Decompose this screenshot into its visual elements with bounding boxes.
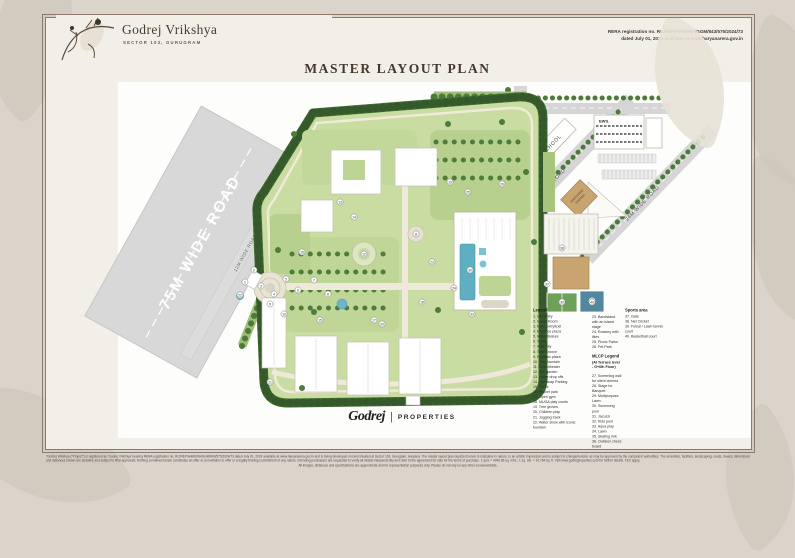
sports-heading: Sports area — [625, 308, 665, 313]
properties-wordmark: PROPERTIES — [398, 414, 456, 421]
map-marker-number: 18 — [420, 300, 424, 304]
legend-item: 24. Rockery with lilies — [592, 330, 622, 340]
ews-label: EWS. — [599, 119, 609, 124]
mlcp-heading: MLCP Legend — [592, 354, 622, 359]
mlcp-building — [454, 212, 516, 310]
map-marker-number: 15 — [318, 318, 322, 322]
map-marker-number: 30 — [468, 268, 472, 272]
legend-column-1: Legend 1. Site Entry2. Guard Room3. Main… — [533, 308, 589, 430]
rooftop-lawn — [479, 276, 511, 296]
kids-pool — [480, 261, 487, 268]
legend-item: 27. Screening wall for silent cinema — [592, 373, 622, 383]
logo-divider: | — [390, 411, 393, 423]
map-marker-number: 16 — [300, 250, 304, 254]
legend-item: 23. Bandstand with an island stage — [592, 315, 622, 330]
legend-item: 28. Stage for Banquet — [592, 384, 622, 394]
map-marker-number: 7 — [313, 278, 315, 282]
banquet-block — [553, 257, 589, 289]
map-marker-number: 1 — [244, 280, 246, 284]
map-marker-number: 40 — [590, 300, 594, 304]
map-marker-number: 11 — [414, 232, 418, 236]
map-marker-number: 13 — [338, 200, 342, 204]
map-marker-number: 22 — [238, 293, 242, 297]
map-marker-number: 2 — [253, 268, 255, 272]
branch-illustration — [58, 14, 118, 66]
map-marker-number: 20 — [380, 322, 384, 326]
jacuzzi — [479, 248, 486, 255]
disclaimer-paragraph-1: *Godrej Vrikshya ("Project") is register… — [46, 455, 750, 463]
map-marker-number: 4 — [273, 292, 275, 296]
map-marker-number: 3 — [260, 284, 262, 288]
legend: Legend 1. Site Entry2. Guard Room3. Main… — [533, 308, 665, 558]
map-marker-number: 23 — [430, 260, 434, 264]
map-marker-number: 6 — [297, 288, 299, 292]
legend-item: 30. Swimming pool — [592, 404, 622, 414]
green-strip — [543, 152, 555, 212]
map-marker-number: 21 — [268, 380, 272, 384]
map-marker-number: 9 — [269, 302, 271, 306]
legend-column-3: Sports area 37. Gate38. Net Cricket39. F… — [625, 308, 665, 339]
legend-item: 39. Futsal / Lawn tennis court — [625, 324, 665, 334]
map-marker-number: 14 — [352, 215, 356, 219]
legend-item: 40. Basketball court — [625, 334, 665, 339]
brochure-page: 75M WIDE ROAD 12M WIDE ROAD 24M WIDE ROA… — [0, 0, 795, 490]
map-marker-number: 17 — [372, 318, 376, 322]
courtyard — [343, 160, 365, 180]
map-marker-number: 8 — [327, 292, 329, 296]
walkway-ew — [264, 283, 460, 290]
legend-column-2: 23. Bandstand with an island stage24. Ro… — [592, 308, 622, 449]
map-marker-number: 39 — [560, 300, 564, 304]
brand-name: Godrej Vrikshya — [122, 22, 217, 38]
disclaimer: *Godrej Vrikshya ("Project") is register… — [46, 455, 750, 483]
legend-item: 22. Water show with iconic fountain — [533, 420, 589, 430]
parking-structure — [544, 214, 598, 254]
legend-item: 36. Outdoor chess board — [592, 439, 622, 449]
map-marker-number: 26 — [500, 182, 504, 186]
skating-rink — [481, 300, 509, 308]
map-marker-number: 24 — [452, 286, 456, 290]
map-marker-number: 10 — [282, 312, 286, 316]
godrej-script: Godrej — [348, 409, 385, 425]
south-entry — [406, 396, 420, 405]
map-marker-number: 25 — [466, 190, 470, 194]
map-marker-number: 19 — [448, 180, 452, 184]
map-marker-number: 38 — [560, 246, 564, 250]
page-title: MASTER LAYOUT PLAN — [0, 61, 795, 77]
map-marker-number: 37 — [545, 282, 549, 286]
legend-item: 29. Multipurpose Lawn — [592, 394, 622, 404]
map-marker-number: 5 — [285, 277, 287, 281]
play-fountain — [337, 299, 347, 309]
map-marker-number: 33 — [470, 312, 474, 316]
brand-subtitle: SECTOR 103, GURUGRAM — [123, 40, 423, 45]
godrej-properties-logo: Godrej | PROPERTIES — [322, 409, 482, 425]
map-marker-number: 12 — [362, 252, 366, 256]
disclaimer-paragraph-2: All images, distances and specifications… — [46, 464, 750, 468]
legend-heading: Legend — [533, 308, 589, 313]
